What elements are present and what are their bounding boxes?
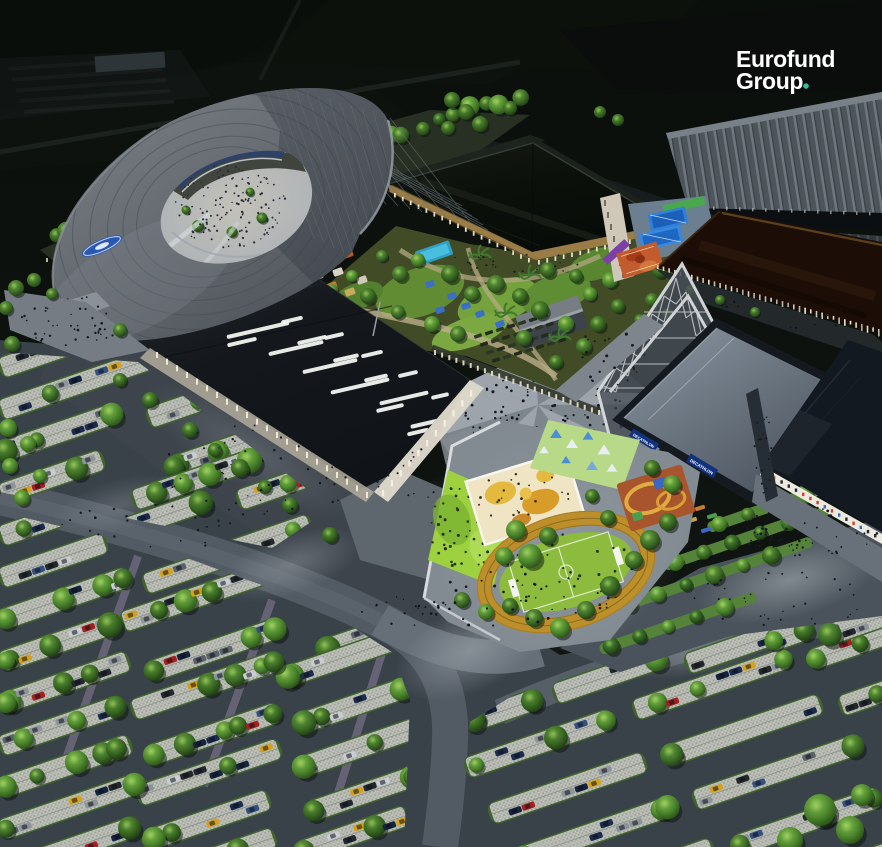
svg-text:Group: Group xyxy=(736,68,803,94)
